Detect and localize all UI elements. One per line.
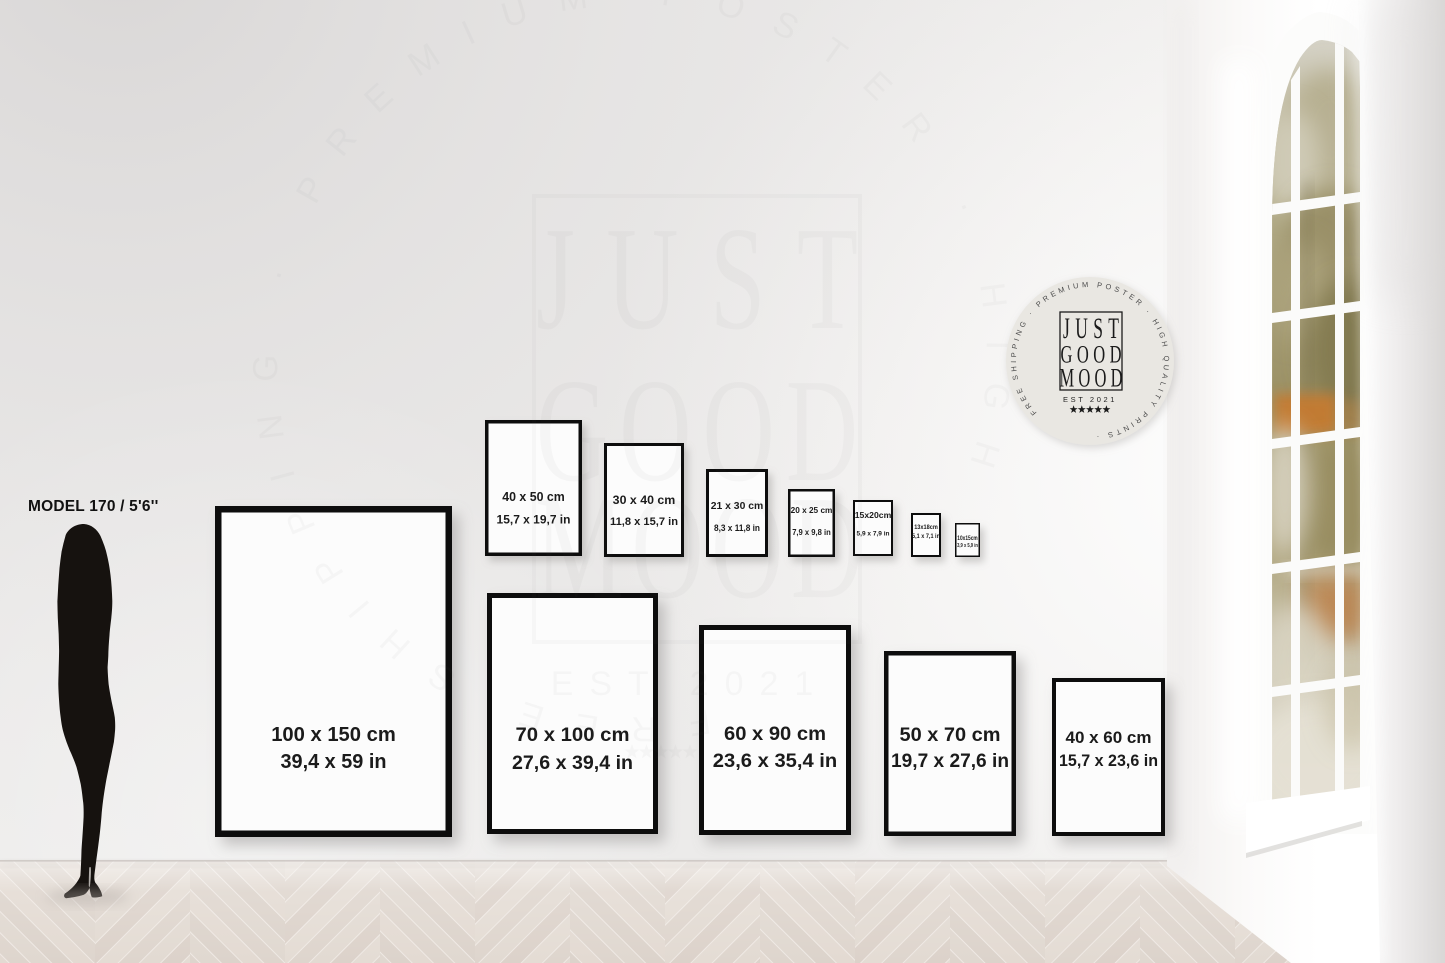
svg-text:19,7 x 27,6 in: 19,7 x 27,6 in (891, 751, 1009, 772)
svg-text:MOOD: MOOD (535, 466, 863, 630)
svg-text:60 x 90 cm: 60 x 90 cm (724, 723, 826, 745)
svg-text:13x18cm: 13x18cm (914, 524, 938, 531)
svg-text:5,1 x 7,1 in: 5,1 x 7,1 in (912, 534, 940, 540)
svg-text:40 x 60 cm: 40 x 60 cm (1066, 729, 1152, 747)
svg-text:23,6 x 35,4 in: 23,6 x 35,4 in (713, 750, 838, 772)
svg-text:EST 2021: EST 2021 (1063, 395, 1117, 404)
svg-text:50 x 70 cm: 50 x 70 cm (900, 725, 1001, 746)
svg-text:27,6 x 39,4 in: 27,6 x 39,4 in (512, 752, 633, 774)
svg-text:100 x 150 cm: 100 x 150 cm (271, 723, 396, 746)
svg-text:EST 2021: EST 2021 (551, 665, 830, 703)
svg-text:15,7 x 23,6 in: 15,7 x 23,6 in (1059, 752, 1158, 770)
svg-text:39,4 x 59 in: 39,4 x 59 in (281, 750, 387, 773)
svg-text:3,9 x 5,9 in: 3,9 x 5,9 in (957, 543, 978, 549)
svg-text:MODEL 170 / 5'6'': MODEL 170 / 5'6'' (28, 498, 158, 515)
